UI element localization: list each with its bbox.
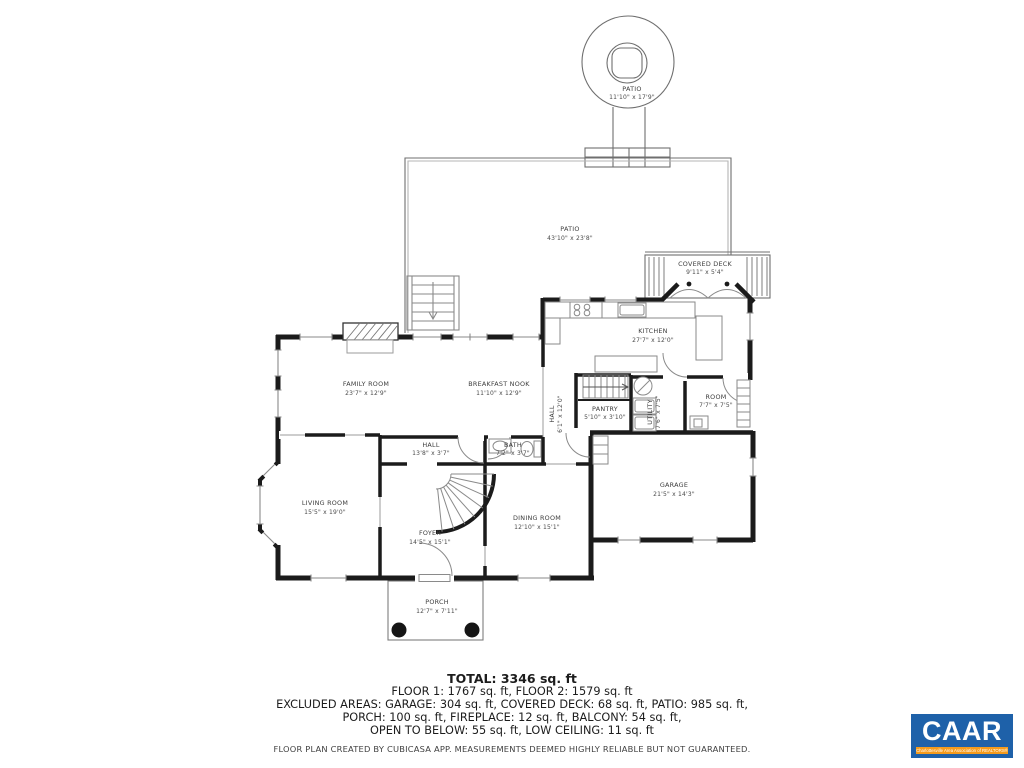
window (311, 574, 346, 582)
room-label-utility: UTILITY (646, 399, 654, 424)
room-label-foyer: FOYER (419, 529, 441, 537)
room-label-pantry: PANTRY (592, 405, 618, 413)
front-door-leaf (419, 575, 450, 582)
floor-plan-drawing: PATIO 11'10" x 17'9" PATIO 43'10" x 23'8… (0, 0, 1024, 768)
room-dims-dining-room: 12'10" x 15'1" (514, 524, 560, 531)
upper-stairs (583, 375, 628, 398)
excluded-areas-text-3: OPEN TO BELOW: 55 sq. ft, LOW CEILING: 1… (0, 724, 1024, 737)
room-dims-patio-main: 43'10" x 23'8" (547, 235, 593, 242)
window (453, 333, 487, 341)
room-label-room: ROOM (705, 393, 726, 401)
deck-door-swing-left (670, 290, 708, 299)
room-dims-living-room: 15'5" x 19'0" (304, 509, 346, 516)
garage-door-swing (566, 433, 590, 457)
room-dims-covered-deck: 9'11" x 5'4" (686, 269, 724, 276)
excluded-areas-text-2: PORCH: 100 sq. ft, FIREPLACE: 12 sq. ft,… (0, 711, 1024, 724)
front-door-swing (419, 543, 452, 576)
room-label-dining-room: DINING ROOM (513, 514, 561, 522)
room-label-hall-lower: HALL (422, 441, 439, 449)
deck-door-post (687, 282, 692, 287)
wall-openings (279, 373, 748, 582)
window (618, 536, 640, 544)
room-label-garage: GARAGE (660, 481, 688, 489)
room-dims-bath: 7'2" x 3'7" (496, 450, 530, 457)
room-dims-kitchen: 27'7" x 12'0" (632, 337, 674, 344)
patio-steps (407, 276, 459, 330)
room-label-bath: BATH (504, 441, 522, 449)
room-label-family-room: FAMILY ROOM (343, 380, 389, 388)
garage-shelf (593, 436, 608, 464)
floor-areas-text: FLOOR 1: 1767 sq. ft, FLOOR 2: 1579 sq. … (0, 685, 1024, 698)
room-dims-pantry: 5'10" x 3'10" (584, 414, 626, 421)
porch-column (392, 623, 407, 638)
toilet-tank (534, 441, 541, 457)
bay-window (256, 486, 264, 524)
room-label-breakfast-nook: BREAKFAST NOOK (468, 380, 530, 388)
room-dims-patio-top: 11'10" x 17'9" (609, 94, 655, 101)
area-summary: TOTAL: 3346 sq. ft FLOOR 1: 1767 sq. ft,… (0, 672, 1024, 754)
walkway (613, 107, 645, 148)
room-label-patio-top: PATIO (622, 85, 641, 93)
kitchen-island (696, 316, 722, 360)
deck-stairs-left (649, 257, 664, 296)
room-label-kitchen: KITCHEN (638, 327, 667, 335)
deck-stairs-right (747, 257, 767, 296)
caar-logo: CAAR Charlottesville Area Association of… (911, 714, 1013, 758)
room-label-living-room: LIVING ROOM (302, 499, 348, 507)
window (518, 574, 550, 582)
porch-column (465, 623, 480, 638)
deck-door-post (725, 282, 730, 287)
window (746, 313, 754, 340)
fixtures (343, 302, 750, 638)
room-label-covered-deck: COVERED DECK (678, 260, 732, 268)
room-dims-utility: 7'6" x 7'5" (655, 395, 662, 429)
window (274, 350, 282, 376)
walls (259, 284, 754, 580)
window (693, 536, 717, 544)
caar-logo-tagline: Charlottesville Area Association of REAL… (916, 747, 1008, 754)
fireplace (343, 323, 398, 353)
total-area-text: TOTAL: 3346 sq. ft (0, 672, 1024, 685)
room-dims-family-room: 23'7" x 12'9" (345, 390, 387, 397)
room-dims-hall-lower: 13'8" x 3'7" (412, 450, 450, 457)
window (300, 333, 332, 341)
window (274, 390, 282, 417)
room-dims-breakfast-nook: 11'10" x 12'9" (476, 390, 522, 397)
window (513, 333, 539, 341)
room-dims-room: 7'7" x 7'5" (699, 402, 733, 409)
floor-plan-page: PATIO 11'10" x 17'9" PATIO 43'10" x 23'8… (0, 0, 1024, 768)
room-label-patio-main: PATIO (560, 225, 579, 233)
room-dims-garage: 21'5" x 14'3" (653, 491, 695, 498)
room-label-hall-upper: HALL (548, 405, 556, 422)
caar-logo-text: CAAR (911, 716, 1013, 746)
room-dims-porch: 12'7" x 7'11" (416, 608, 458, 615)
room-dims-hall-upper: 6'1" x 12'0" (557, 395, 564, 433)
excluded-areas-text-1: EXCLUDED AREAS: GARAGE: 304 sq. ft, COVE… (0, 698, 1024, 711)
window (413, 333, 441, 341)
disclaimer-text: FLOOR PLAN CREATED BY CUBICASA APP. MEAS… (0, 744, 1024, 754)
water-heater (634, 377, 652, 395)
window (749, 458, 757, 476)
room-label-porch: PORCH (425, 598, 449, 606)
room-dims-foyer: 14'5" x 15'1" (409, 539, 451, 546)
kitchen-peninsula (595, 356, 657, 372)
